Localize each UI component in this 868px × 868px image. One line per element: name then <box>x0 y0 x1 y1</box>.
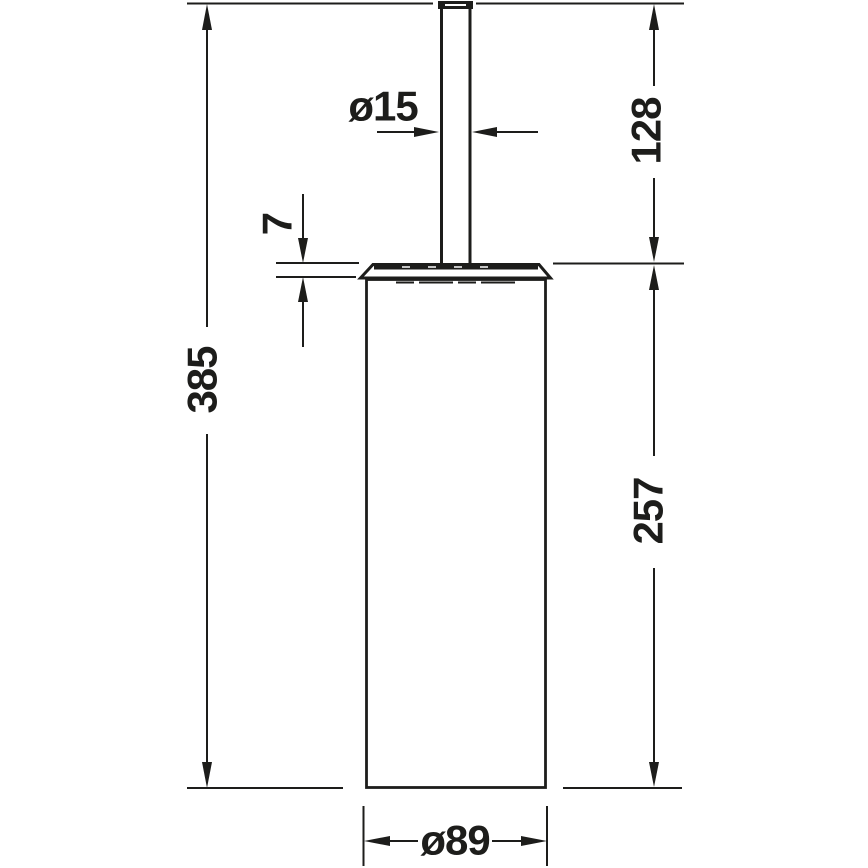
dim-lid-thickness: 7 <box>254 194 309 347</box>
dim-label-container-diameter: ø89 <box>420 817 489 864</box>
dim-container-diameter: ø89 <box>364 817 547 864</box>
dim-label-lid-thickness: 7 <box>254 213 301 235</box>
dim-handle-length: 128 <box>623 4 670 262</box>
dim-handle-diameter: ø15 <box>348 83 538 138</box>
arrow-right-icon <box>521 836 547 846</box>
extension-lines <box>187 4 684 867</box>
arrow-down-icon <box>649 237 659 262</box>
arrow-right-icon <box>414 127 439 137</box>
dim-overall-height: 385 <box>179 4 226 788</box>
arrow-down-icon <box>202 762 212 788</box>
dim-label-handle-length: 128 <box>623 97 670 165</box>
dim-label-handle-diameter: ø15 <box>348 83 418 130</box>
arrow-up-icon <box>649 265 659 290</box>
technical-drawing-canvas: 385 7 ø15 128 257 ø89 <box>0 0 868 868</box>
dim-label-overall-height: 385 <box>179 346 226 414</box>
arrow-up-icon <box>649 4 659 30</box>
dim-container-height: 257 <box>625 265 672 787</box>
arrow-up-icon <box>202 4 212 30</box>
dim-label-container-height: 257 <box>625 477 672 544</box>
arrow-left-icon <box>472 127 497 137</box>
handle-rod <box>438 1 473 265</box>
container-body <box>367 280 546 788</box>
arrow-up-icon <box>298 277 308 302</box>
arrow-left-icon <box>364 836 390 846</box>
arrow-down-icon <box>298 238 308 263</box>
arrow-down-icon <box>649 762 659 787</box>
dimension-drawing: 385 7 ø15 128 257 ø89 <box>0 0 868 868</box>
